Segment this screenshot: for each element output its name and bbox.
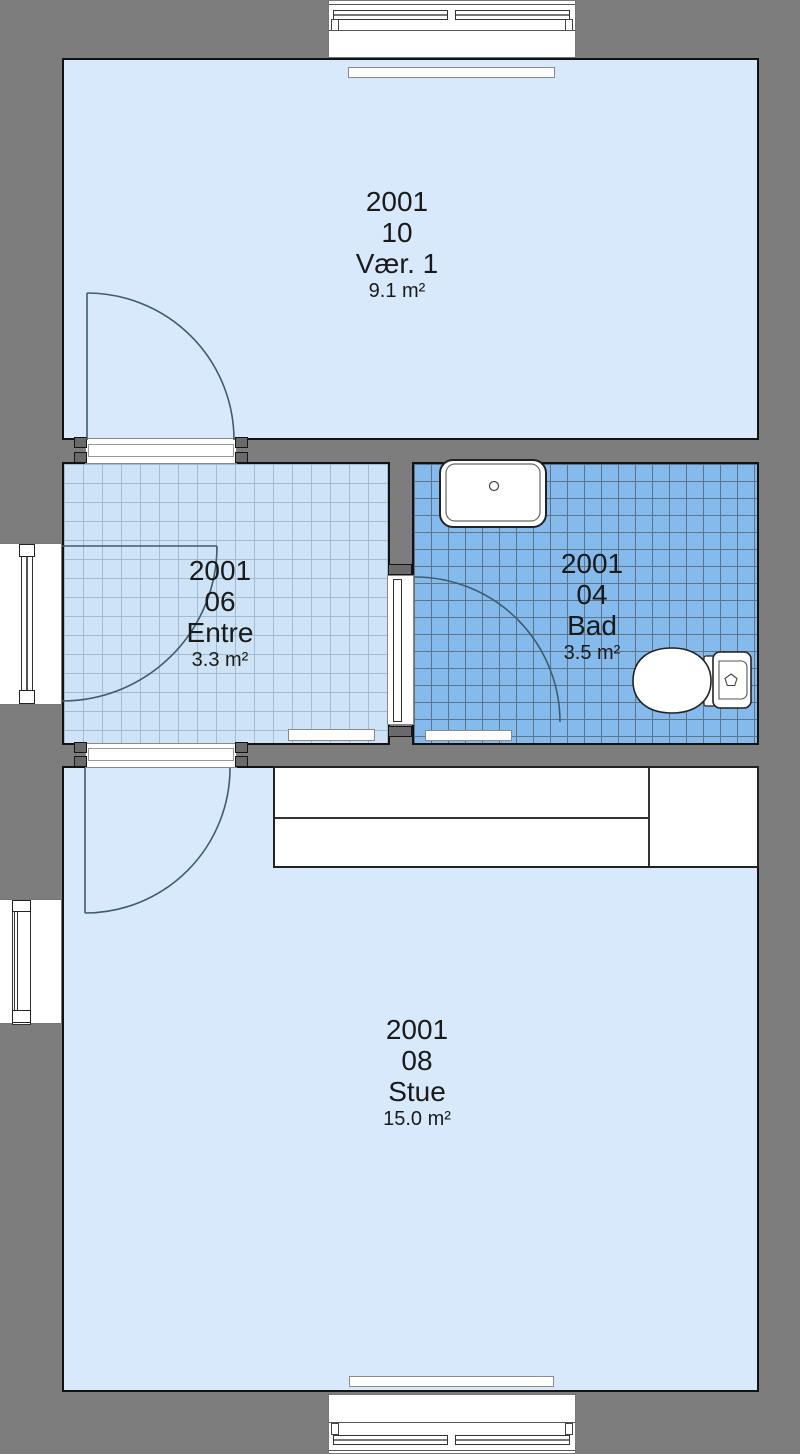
room-label-vaer1: 2001 10 Vær. 1 9.1 m² [312,186,482,304]
bad-door-panel [393,579,402,722]
radiator [425,730,512,741]
door-jamb [235,452,248,463]
room-name: Vær. 1 [312,248,482,279]
window-sash [455,10,570,20]
window-sash [333,10,448,20]
room-number: 06 [135,586,305,617]
door-opening-stue [85,743,237,768]
window-sill-line [329,1422,575,1423]
door-jamb [235,742,248,753]
door-frame-cap [19,544,35,557]
window-post [331,1423,339,1435]
door-jamb [74,756,87,767]
door-jamb [74,452,87,463]
radiator [348,67,555,78]
door-sill [88,444,234,457]
room-label-stue: 2001 08 Stue 15.0 m² [332,1014,502,1132]
room-code: 2001 [507,548,677,579]
door-jamb [388,726,412,737]
window-sash [333,1435,448,1445]
window-frame-cap [12,1010,31,1023]
entry-door [0,543,62,705]
room-name: Entre [135,617,305,648]
entry-door-panel [21,556,33,693]
room-number: 04 [507,579,677,610]
door-frame-cap [19,690,35,704]
window-left [0,899,62,1024]
room-area: 3.3 m² [135,648,305,673]
room-number: 10 [312,217,482,248]
window-bottom [328,1394,576,1454]
room-name: Stue [332,1076,502,1107]
room-name: Bad [507,610,677,641]
door-sill [88,748,234,761]
window-top [328,0,576,58]
room-number: 08 [332,1045,502,1076]
window-frame-line [329,4,575,5]
door-opening-bad [387,575,414,725]
door-jamb [388,564,412,575]
window-sash [455,1435,570,1445]
door-jamb [74,437,87,448]
door-jamb [74,742,87,753]
room-label-bad: 2001 04 Bad 3.5 m² [507,548,677,666]
radiator [288,729,375,741]
radiator [349,1376,554,1387]
room-area: 3.5 m² [507,641,677,666]
window-sill-line [329,30,575,31]
door-jamb [235,756,248,767]
door-jamb [235,437,248,448]
window-glass-line [14,910,18,1015]
window-frame-line [329,1450,575,1451]
room-code: 2001 [135,555,305,586]
floor-plan: 2001 10 Vær. 1 9.1 m² 2001 06 Entre 3.3 … [0,0,800,1454]
window-post [565,1423,573,1435]
room-code: 2001 [332,1014,502,1045]
window-frame-cap [12,900,31,912]
room-code: 2001 [312,186,482,217]
room-area: 15.0 m² [332,1107,502,1132]
kitchen-counter [273,766,759,868]
counter-divider [648,768,650,866]
door-opening-vaer1 [85,438,237,464]
room-area: 9.1 m² [312,279,482,304]
room-label-entre: 2001 06 Entre 3.3 m² [135,555,305,673]
counter-edge-line [275,817,648,819]
